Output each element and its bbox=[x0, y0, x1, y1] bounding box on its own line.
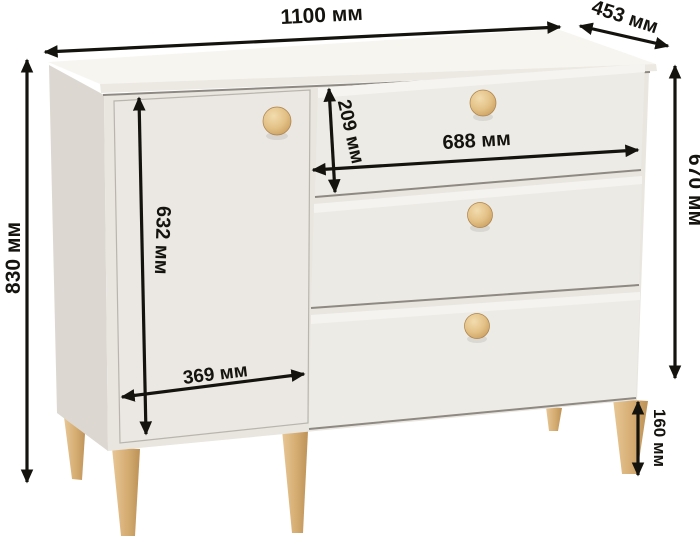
drawer-1-knob bbox=[470, 90, 496, 116]
leg-front-center bbox=[282, 430, 308, 533]
dim-height-label: 830 мм bbox=[2, 222, 25, 294]
furniture-dimension-diagram: 1100 мм 453 мм 830 мм 632 мм 209 мм 688 … bbox=[0, 0, 700, 540]
dim-width-label: 1100 мм bbox=[280, 2, 364, 29]
leg-front-left bbox=[112, 448, 140, 536]
door-knob bbox=[263, 107, 291, 135]
dim-body-height-label: 670 мм bbox=[684, 154, 700, 226]
leg-back-right bbox=[546, 407, 562, 431]
dim-leg-height-label: 160 мм bbox=[650, 409, 669, 467]
drawer-3-knob bbox=[465, 314, 490, 339]
leg-front-right bbox=[613, 399, 648, 474]
dim-door-height-label: 632 мм bbox=[150, 206, 174, 275]
cabinet-left-side bbox=[49, 65, 108, 451]
drawer-2-knob bbox=[468, 203, 493, 228]
dim-depth-label: 453 мм bbox=[589, 0, 661, 38]
dim-drawer-width-label: 688 мм bbox=[442, 128, 512, 154]
diagram-canvas: 1100 мм 453 мм 830 мм 632 мм 209 мм 688 … bbox=[0, 0, 700, 540]
